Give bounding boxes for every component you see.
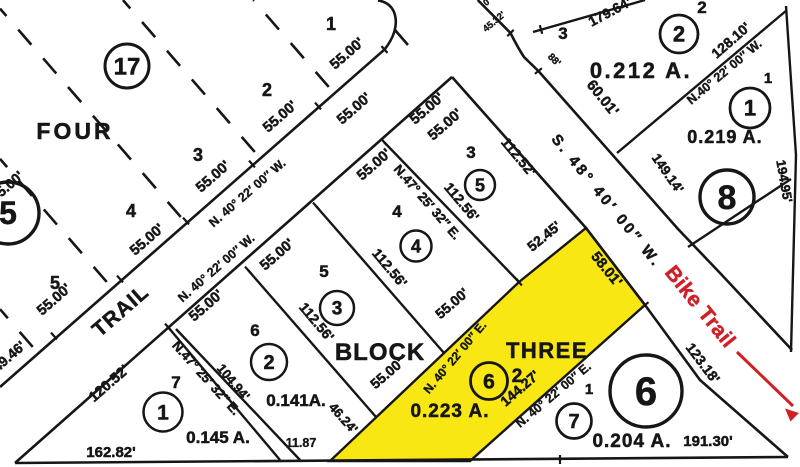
- svg-text:7: 7: [171, 373, 180, 392]
- svg-text:3: 3: [466, 143, 475, 162]
- svg-text:2: 2: [263, 352, 274, 374]
- svg-text:0.212 A.: 0.212 A.: [590, 58, 692, 83]
- svg-text:3: 3: [193, 145, 203, 165]
- svg-text:0.204 A.: 0.204 A.: [592, 431, 671, 452]
- svg-text:BLOCK: BLOCK: [335, 339, 425, 366]
- svg-text:5: 5: [475, 175, 485, 195]
- svg-text:FOUR: FOUR: [36, 118, 113, 144]
- svg-text:1: 1: [744, 96, 756, 121]
- svg-text:1: 1: [157, 401, 169, 424]
- svg-text:0.145 A.: 0.145 A.: [186, 428, 250, 447]
- svg-text:1: 1: [585, 381, 593, 398]
- svg-text:17: 17: [114, 53, 141, 80]
- svg-text:6: 6: [250, 321, 259, 340]
- svg-text:162.82': 162.82': [86, 444, 135, 461]
- svg-text:4: 4: [392, 202, 402, 221]
- svg-text:0.141A.: 0.141A.: [266, 391, 326, 410]
- svg-text:0.223 A.: 0.223 A.: [410, 401, 489, 422]
- svg-text:3: 3: [558, 24, 567, 43]
- svg-text:1: 1: [326, 14, 336, 34]
- svg-text:6: 6: [635, 370, 657, 414]
- svg-text:8: 8: [718, 179, 737, 217]
- svg-text:4: 4: [126, 201, 136, 221]
- svg-text:1: 1: [764, 70, 772, 87]
- svg-text:191.30': 191.30': [683, 433, 732, 450]
- svg-text:5: 5: [0, 195, 17, 231]
- svg-text:2: 2: [262, 80, 272, 100]
- svg-text:6: 6: [483, 370, 495, 393]
- svg-text:4: 4: [411, 236, 421, 256]
- svg-text:3: 3: [332, 299, 343, 320]
- svg-text:0.219 A.: 0.219 A.: [687, 127, 762, 147]
- svg-text:11.87: 11.87: [286, 436, 317, 450]
- svg-text:5: 5: [319, 262, 328, 281]
- svg-text:THREE: THREE: [506, 338, 588, 363]
- svg-text:2: 2: [673, 22, 685, 47]
- svg-text:7: 7: [568, 411, 579, 433]
- svg-text:2: 2: [697, 0, 706, 17]
